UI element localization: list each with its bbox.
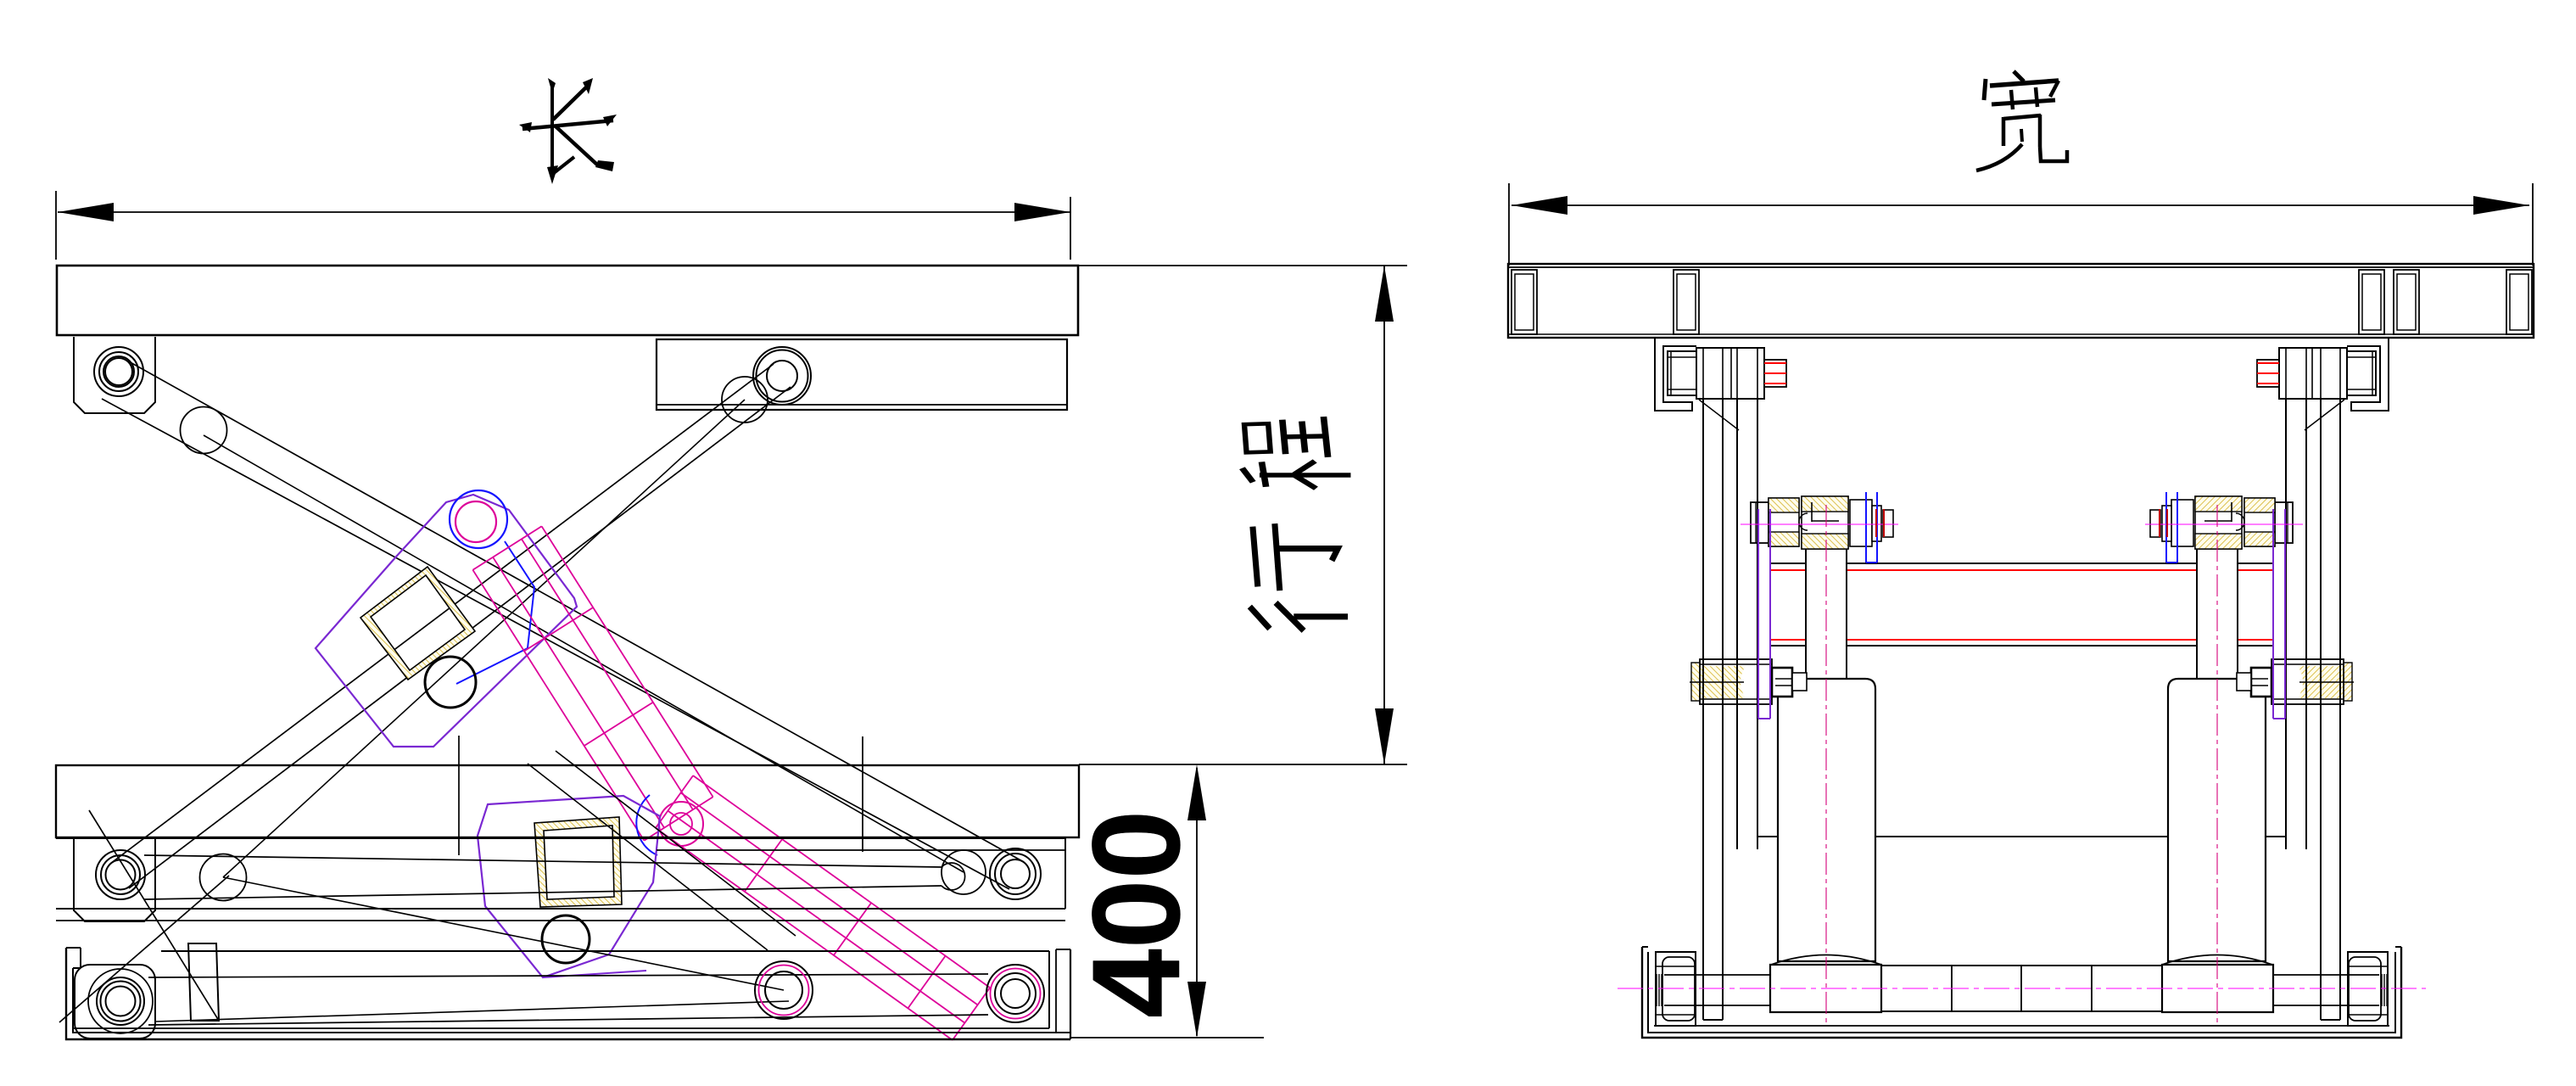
svg-text:400: 400 <box>1067 810 1206 1018</box>
